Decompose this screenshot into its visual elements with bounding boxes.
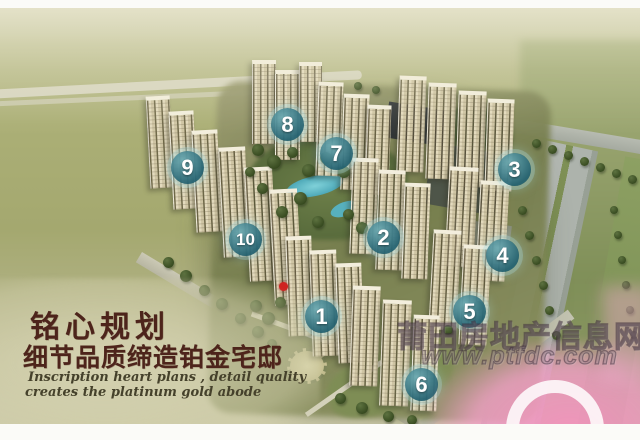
headline-cn-sub: 细节品质缔造铂金宅邸 (23, 338, 283, 374)
building-marker-1: 1 (305, 300, 338, 333)
building-marker-4: 4 (486, 239, 519, 272)
building-marker-9: 9 (171, 151, 204, 184)
building-marker-3: 3 (498, 153, 531, 186)
headline-en-line1: Inscription heart plans , detail quality (28, 370, 306, 385)
bottom-white-border (0, 424, 640, 440)
building-marker-2: 2 (367, 221, 400, 254)
promo-image: 12345678910 铭心规划 细节品质缔造铂金宅邸 Inscription … (0, 0, 640, 440)
building-marker-10: 10 (229, 223, 262, 256)
top-white-border (0, 0, 640, 8)
building-marker-7: 7 (320, 137, 353, 170)
headline-en-line2: creates the platinum gold abode (25, 385, 261, 400)
building-marker-8: 8 (271, 108, 304, 141)
watermark-site-url: www.ptfdc.com (421, 342, 618, 371)
